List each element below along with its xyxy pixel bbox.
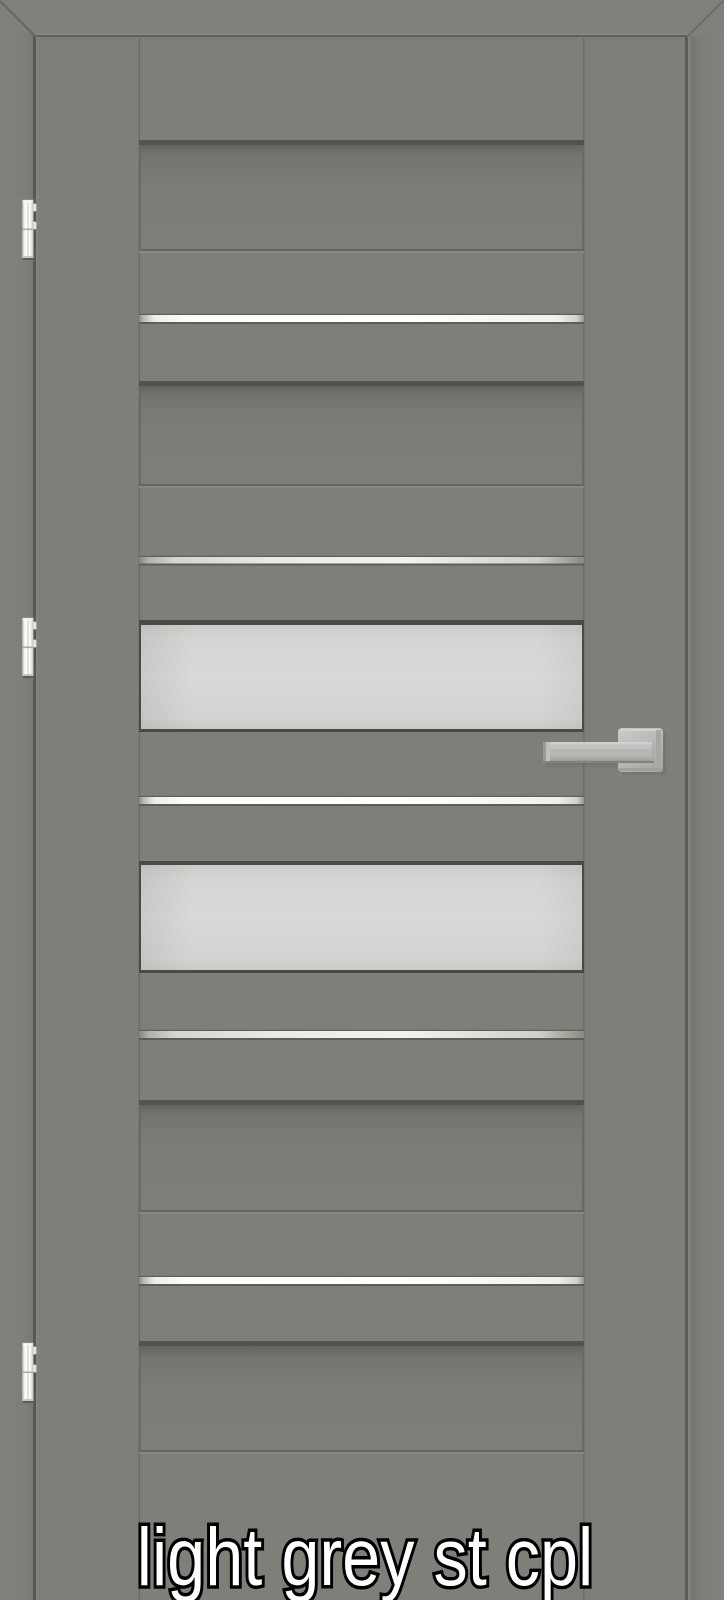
svg-text:light grey st cpl: light grey st cpl [137, 1512, 594, 1600]
